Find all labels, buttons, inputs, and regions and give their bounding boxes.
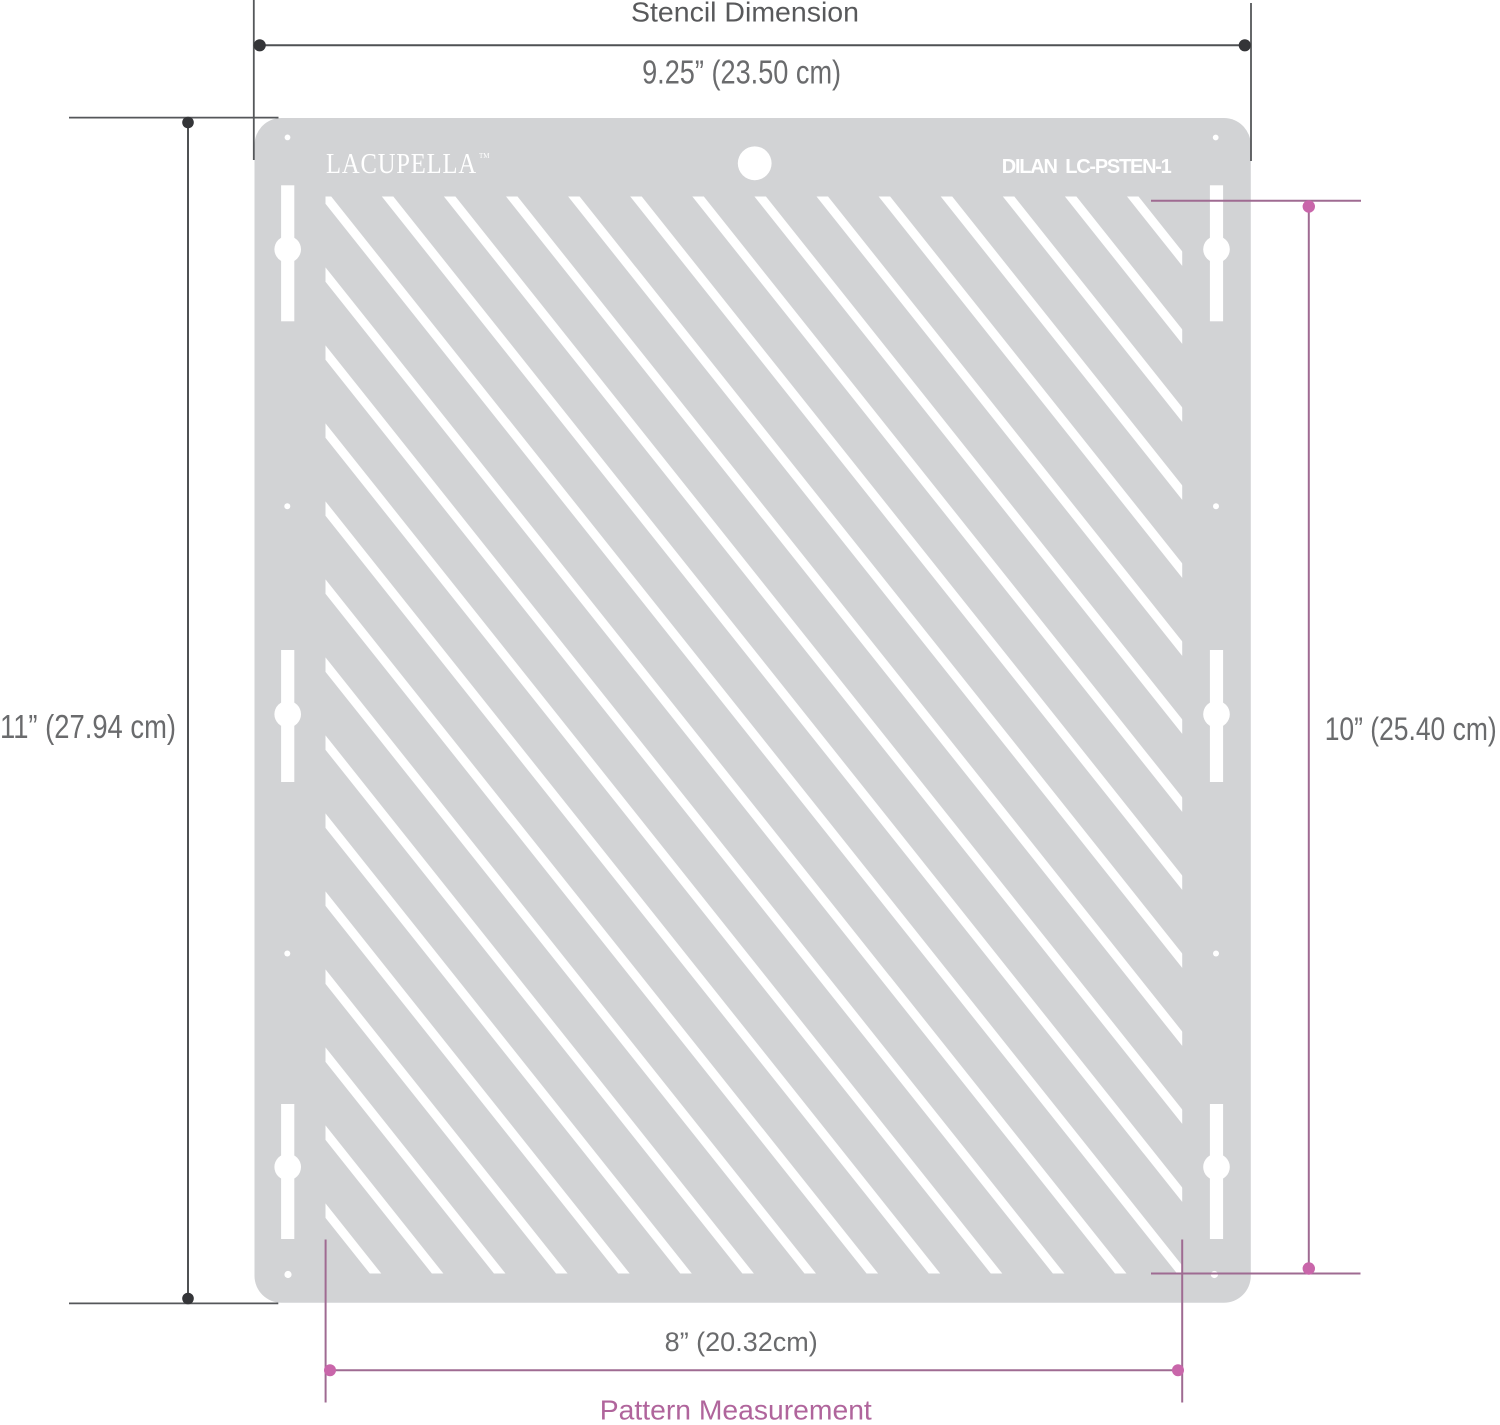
svg-text:Pattern Measurement: Pattern Measurement	[600, 1395, 872, 1425]
svg-text:8” (20.32cm): 8” (20.32cm)	[665, 1327, 818, 1357]
svg-text:11” (27.94 cm): 11” (27.94 cm)	[0, 708, 176, 745]
svg-text:9.25” (23.50 cm): 9.25” (23.50 cm)	[642, 54, 841, 91]
svg-text:DILAN LC-PSTEN-1: DILAN LC-PSTEN-1	[1002, 156, 1172, 178]
svg-text:10” (25.40 cm): 10” (25.40 cm)	[1325, 711, 1497, 747]
svg-text:LACUPELLA: LACUPELLA	[326, 148, 477, 180]
svg-text:Stencil Dimension: Stencil Dimension	[631, 0, 859, 28]
svg-text:TM: TM	[479, 152, 490, 160]
